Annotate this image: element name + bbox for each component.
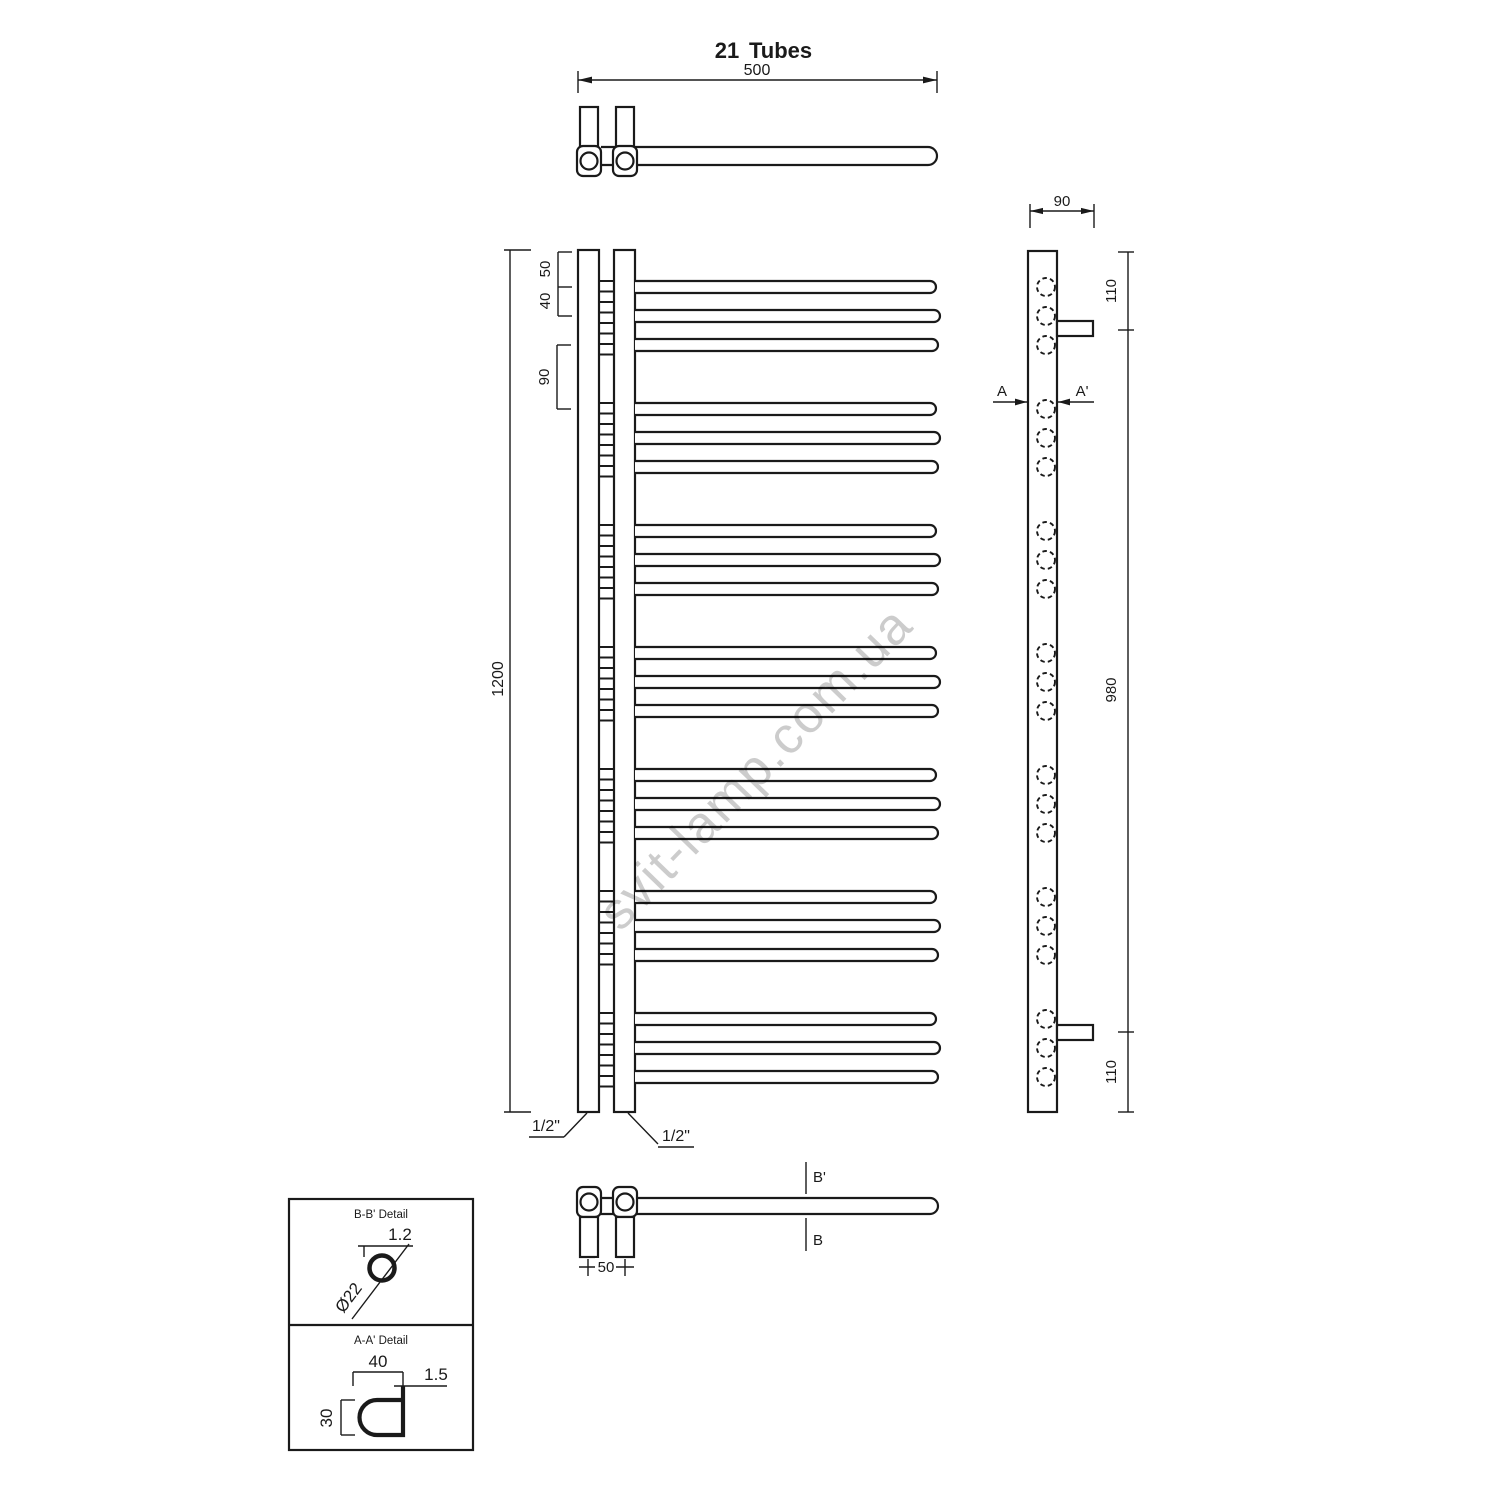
bottom-view-hole-right [617,1194,634,1211]
side-tube-hole [1037,307,1055,325]
side-tube-hole [1037,946,1055,964]
side-tube-hole [1037,1039,1055,1057]
section-a-arrow-right [1058,399,1070,406]
dim-500-label: 500 [744,62,771,79]
front-tube [635,583,938,595]
front-view: 50 40 90 1200 1/2" 1/2" [490,250,940,1147]
side-tube-hole [1037,795,1055,813]
connection-right-label: 1/2" [662,1128,690,1145]
connection-right-leader [628,1113,658,1144]
dim-110-top-label: 110 [1103,279,1120,303]
side-tube-hole [1037,702,1055,720]
front-tube [635,432,940,444]
side-tube-hole [1037,888,1055,906]
side-tube-hole [1037,824,1055,842]
front-ladder-rungs [599,281,614,1087]
side-tube-hole [1037,336,1055,354]
aa-rail-section [360,1386,403,1435]
top-view: 21 Tubes 500 [577,38,937,176]
side-bracket-bottom [1057,1025,1093,1040]
connection-left-leader [564,1113,587,1137]
side-tube-hole [1037,458,1055,476]
bottom-view-hole-left [581,1194,598,1211]
side-tube-hole [1037,766,1055,784]
bottom-view: 50 B' B [577,1162,938,1276]
front-tube [635,891,936,903]
front-tube [635,310,940,322]
bottom-view-pipe-stub-right [616,1217,634,1257]
aa-detail-title: A-A' Detail [354,1335,408,1347]
side-tube-hole [1037,917,1055,935]
front-tube [635,1071,938,1083]
front-tube [635,461,938,473]
dim-110-bottom-label: 110 [1103,1060,1120,1084]
front-tube [635,676,940,688]
front-tube [635,920,940,932]
detail-panel: B-B' Detail Ø22 1.2 A-A' Detail 40 1.5 3… [289,1199,473,1450]
section-a-prime-label: A' [1076,383,1089,400]
front-tube [635,1013,936,1025]
top-view-pipe-stub-right [616,107,634,148]
front-tube [635,281,936,293]
front-tube [635,403,936,415]
front-tube [635,1042,940,1054]
aa-wall-label: 1.5 [424,1365,448,1384]
dim-depth-arrow-left [1030,208,1043,214]
top-view-hole-left [581,153,598,170]
side-tube-hole [1037,673,1055,691]
top-view-tube [601,147,937,165]
side-view: 90 110 980 110 A A' [993,193,1134,1112]
side-bracket-top [1057,321,1093,336]
dim-1200-label: 1200 [490,661,507,697]
dim-depth-label: 90 [1054,193,1071,210]
dim-500-arrow-left [578,77,592,84]
front-tube [635,554,940,566]
side-tube-hole [1037,551,1055,569]
side-tube-hole [1037,580,1055,598]
front-tubes [635,281,940,1083]
side-tube-hole [1037,1068,1055,1086]
dim-pitch-label: 50 [598,1259,615,1276]
dim-90-label: 90 [536,369,553,386]
dim-50-label: 50 [537,261,554,278]
side-tube-hole [1037,400,1055,418]
radiator-drawing: 21 Tubes 500 50 40 90 [0,0,1500,1500]
front-rail-right [614,250,635,1112]
top-view-hole-right [617,153,634,170]
technical-drawing-page: 21 Tubes 500 50 40 90 [0,0,1500,1500]
section-b-prime-label: B' [813,1169,826,1186]
front-rail-left [578,250,599,1112]
front-tube [635,525,936,537]
side-tube-hole [1037,522,1055,540]
drawing-title-number: 21 [715,38,739,63]
bb-detail-title: B-B' Detail [354,1209,408,1221]
dim-980-label: 980 [1103,677,1120,702]
connection-left-label: 1/2" [532,1118,560,1135]
dim-depth-arrow-right [1081,208,1094,214]
side-tube-hole [1037,644,1055,662]
bb-diameter-label: Ø22 [331,1279,366,1316]
bb-wall-label: 1.2 [388,1225,412,1244]
bottom-view-pipe-stub-left [580,1217,598,1257]
drawing-title-word: Tubes [749,38,812,63]
section-a-arrow-left [1015,399,1027,406]
top-view-pipe-stub-left [580,107,598,148]
side-tube-hole [1037,429,1055,447]
section-b-label: B [813,1232,823,1249]
section-a-label: A [997,383,1007,400]
dim-40-label: 40 [537,293,554,310]
aa-height-label: 30 [317,1409,336,1428]
side-tube-hole [1037,1010,1055,1028]
aa-width-label: 40 [369,1352,388,1371]
side-tube-hole [1037,278,1055,296]
bottom-view-tube [601,1198,938,1214]
front-tube [635,949,938,961]
front-tube [635,339,938,351]
dim-500-arrow-right [923,77,937,84]
